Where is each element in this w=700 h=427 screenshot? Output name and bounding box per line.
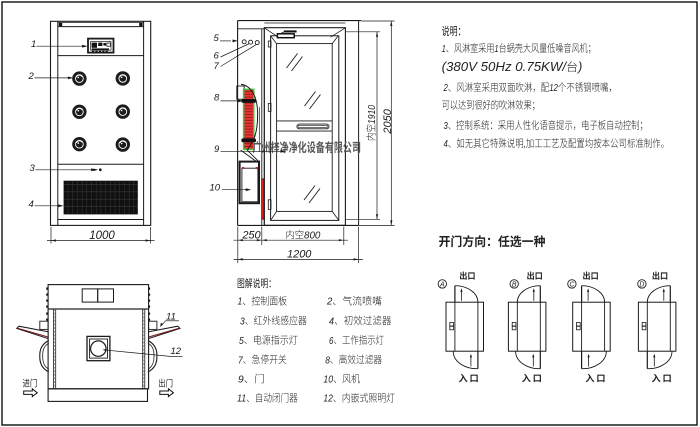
svg-text:7: 7 (238, 355, 243, 366)
svg-text:1: 1 (238, 297, 243, 308)
svg-text:2050: 2050 (382, 108, 394, 134)
svg-text:6: 6 (329, 336, 334, 347)
svg-text:12: 12 (323, 394, 333, 405)
svg-text:3: 3 (30, 163, 36, 174)
svg-text:1: 1 (442, 44, 446, 55)
svg-text:B: B (512, 282, 517, 289)
svg-text:8: 8 (325, 355, 330, 366)
svg-text:9: 9 (214, 144, 220, 155)
svg-text:10: 10 (210, 183, 221, 194)
svg-text:1000: 1000 (89, 230, 115, 242)
svg-text:D: D (639, 282, 644, 289)
svg-text:8: 8 (214, 93, 220, 104)
svg-text:1200: 1200 (287, 249, 312, 261)
svg-text:1910: 1910 (367, 105, 378, 124)
svg-text:5: 5 (214, 33, 220, 44)
svg-text:2: 2 (326, 297, 333, 308)
svg-text:(380V 50Hz 0.75KW/: (380V 50Hz 0.75KW/ (442, 60, 568, 74)
svg-text:9: 9 (238, 375, 244, 386)
svg-text:): ) (576, 60, 582, 74)
svg-text:2: 2 (443, 83, 448, 94)
svg-text:4: 4 (29, 199, 34, 210)
svg-text:1: 1 (494, 44, 498, 55)
svg-text:800: 800 (304, 229, 321, 241)
svg-text:3: 3 (240, 316, 245, 327)
svg-text:250: 250 (241, 229, 261, 241)
svg-text:10: 10 (323, 375, 333, 386)
svg-text:12: 12 (171, 346, 182, 357)
svg-text:4: 4 (444, 139, 449, 150)
svg-text:1: 1 (31, 39, 36, 50)
svg-text:4: 4 (329, 316, 334, 327)
svg-text:2: 2 (28, 71, 35, 82)
svg-text:6: 6 (214, 51, 220, 62)
svg-text:A: A (439, 282, 445, 289)
svg-text:,: , (524, 139, 526, 150)
svg-text:11: 11 (237, 394, 246, 405)
svg-text:12: 12 (549, 83, 558, 94)
svg-text:7: 7 (214, 61, 220, 72)
svg-text:3: 3 (444, 121, 449, 132)
svg-text:5: 5 (239, 336, 244, 347)
